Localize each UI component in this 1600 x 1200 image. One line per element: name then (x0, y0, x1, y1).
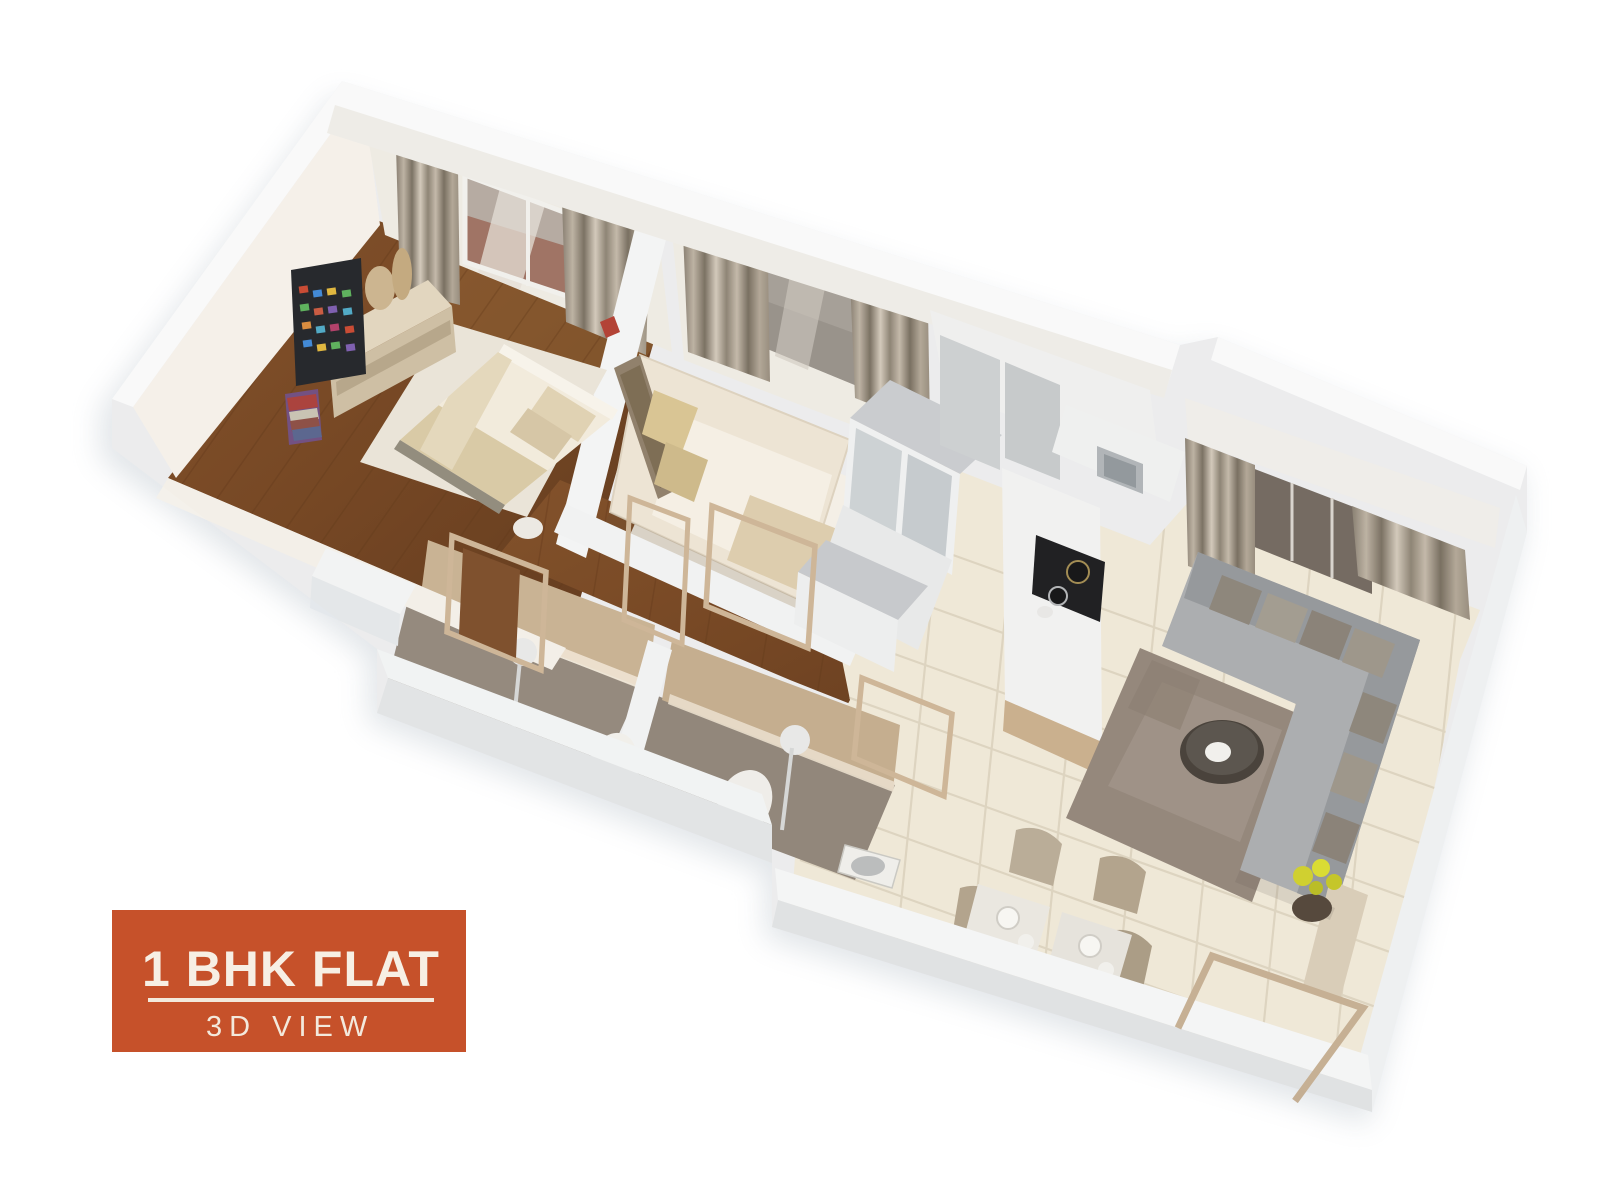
svg-text:1 BHK FLAT: 1 BHK FLAT (142, 941, 440, 997)
svg-text:3D VIEW: 3D VIEW (206, 1011, 374, 1043)
